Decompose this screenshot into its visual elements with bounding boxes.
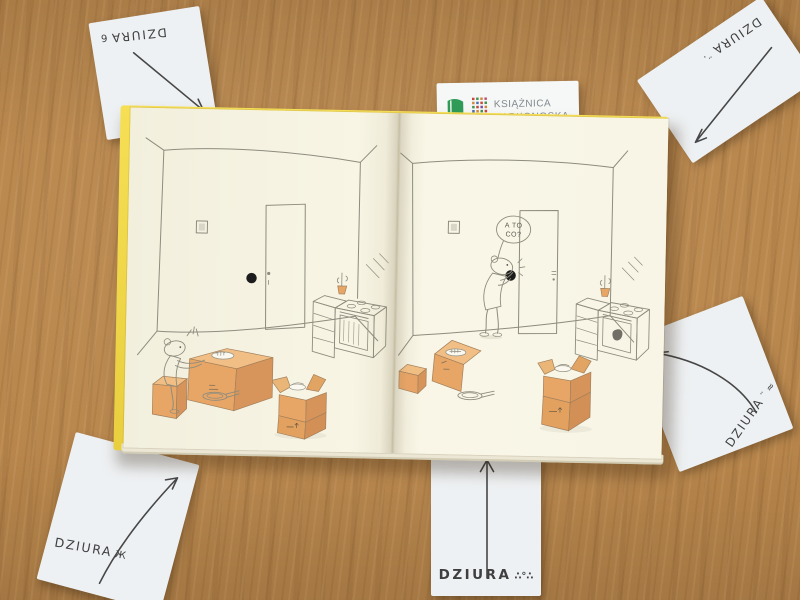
speech-bubble: A TO CO?	[496, 216, 531, 259]
book-right-page: A TO CO?	[392, 113, 668, 459]
stacked-moving-boxes	[536, 355, 593, 433]
box-table	[188, 348, 274, 412]
book-left-page	[123, 108, 399, 454]
right-page-illustration: A TO CO?	[392, 113, 668, 459]
moving-boxes	[270, 374, 328, 440]
light-switch	[196, 221, 207, 233]
tilted-box-with-plate	[432, 340, 481, 392]
logo-line1: KSIĄŻNICA	[494, 97, 569, 111]
left-page-illustration	[123, 108, 399, 454]
book-pages: A TO CO?	[123, 108, 668, 459]
frying-pan	[458, 390, 494, 400]
room-outline	[396, 146, 644, 360]
door	[264, 203, 308, 330]
door	[517, 210, 559, 335]
open-book: A TO CO?	[113, 107, 668, 458]
kitchen-stove	[312, 272, 387, 359]
photo-scene: KSIĄŻNICA KARKONOSKA DZIURA6 DZIURA¨· DZ…	[0, 0, 800, 600]
room-outline	[137, 138, 390, 360]
wall-hole	[246, 273, 257, 284]
small-box	[399, 364, 427, 394]
speech-bubble-text-line1: A TO	[505, 222, 523, 229]
light-switch	[448, 221, 459, 233]
speech-bubble-text-line2: CO?	[505, 231, 521, 238]
